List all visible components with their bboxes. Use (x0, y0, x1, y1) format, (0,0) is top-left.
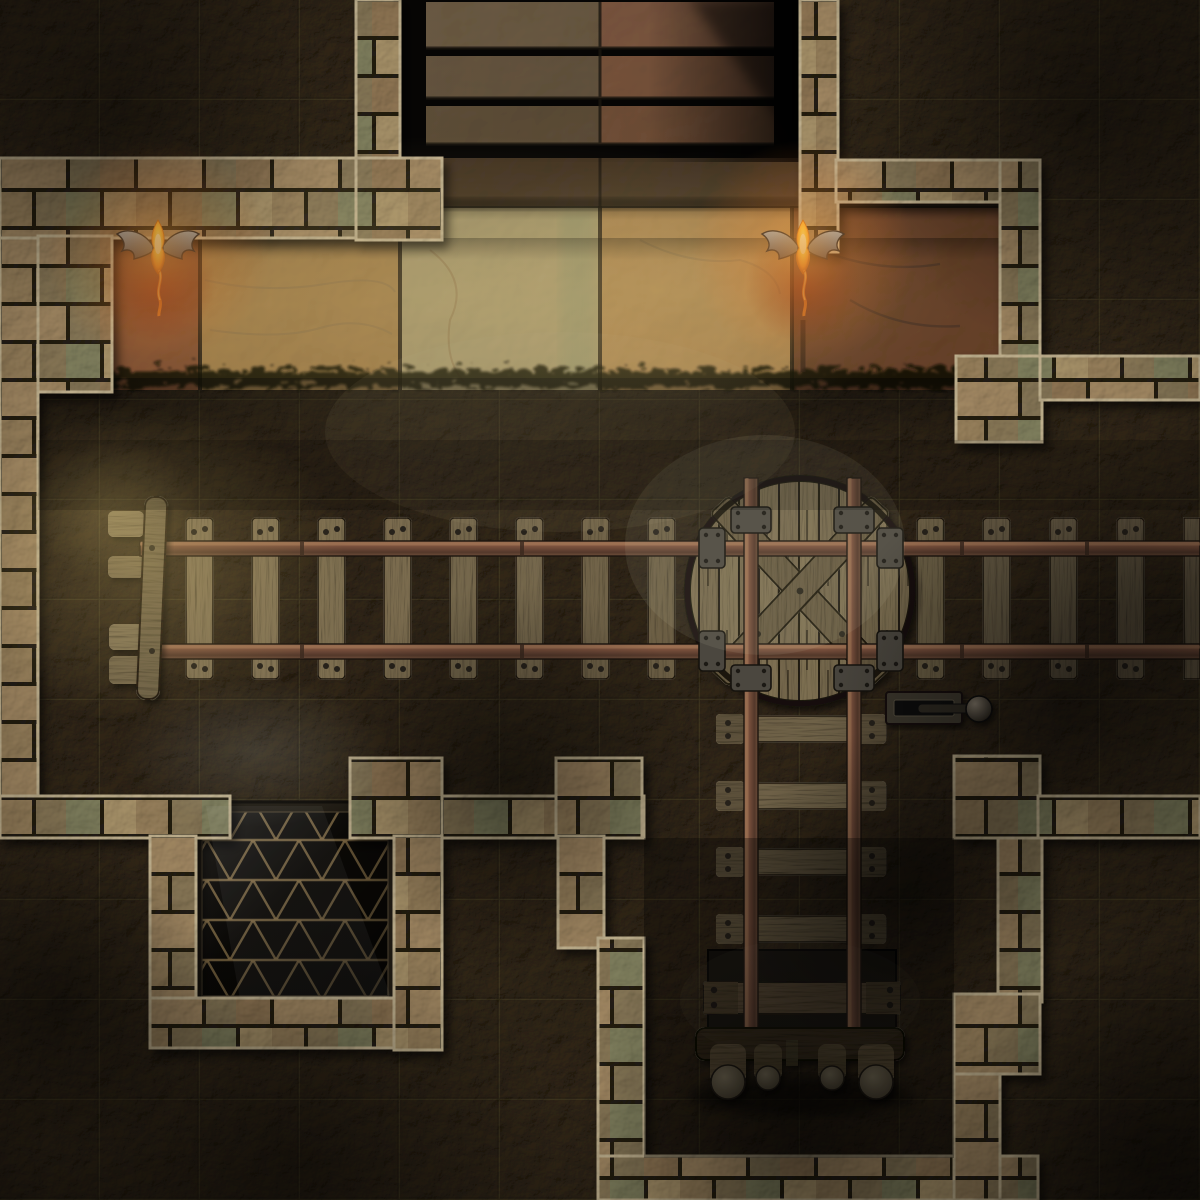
dungeon-map-stage (0, 0, 1200, 1200)
shadow-overlays (0, 0, 1200, 1200)
vignette (0, 0, 1200, 1200)
dungeon-map-canvas (0, 0, 1200, 1200)
